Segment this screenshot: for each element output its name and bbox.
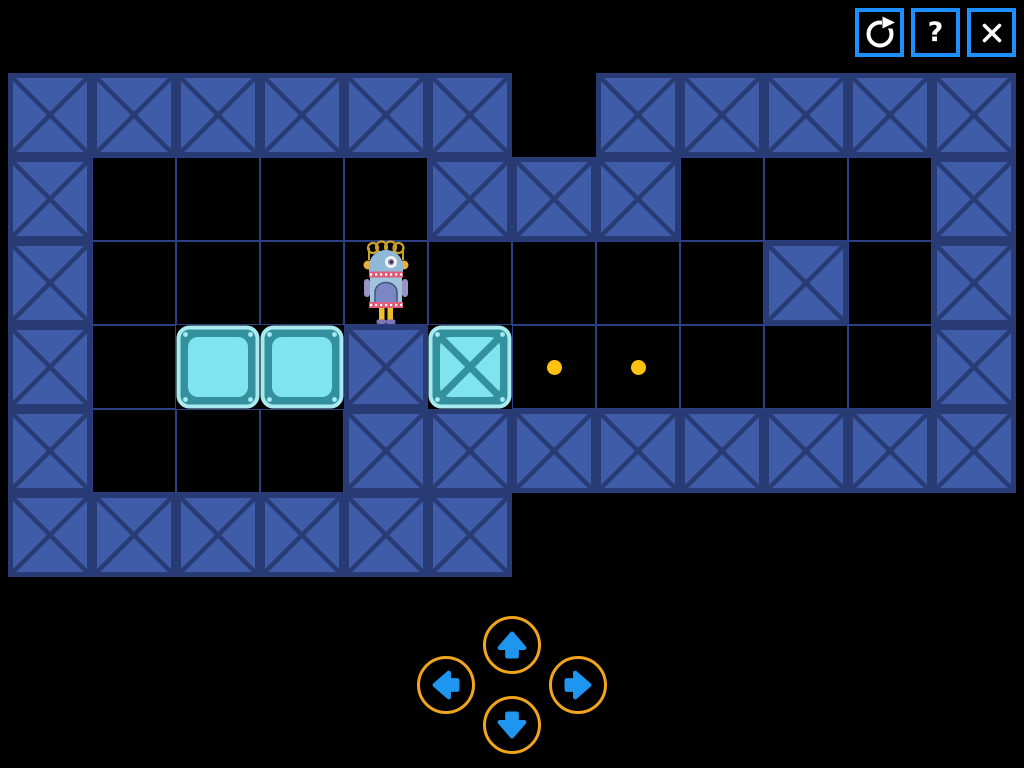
floor-tile — [92, 409, 176, 493]
wall-x-pattern — [176, 493, 260, 577]
floor-tile — [680, 325, 764, 409]
wall-x-pattern — [428, 409, 512, 493]
wall-x-pattern — [176, 73, 260, 157]
floor-tile — [260, 241, 344, 325]
floor-tile — [92, 157, 176, 241]
floor-tile — [176, 409, 260, 493]
wall-x-pattern — [932, 409, 1016, 493]
floor-tile — [512, 241, 596, 325]
wall-tile — [932, 241, 1016, 325]
wall-tile — [92, 73, 176, 157]
floor-tile — [764, 325, 848, 409]
wall-tile — [512, 409, 596, 493]
close-icon — [974, 15, 1010, 51]
wall-x-pattern — [428, 493, 512, 577]
floor-tile — [848, 157, 932, 241]
floor-tile — [596, 241, 680, 325]
wall-tile — [8, 325, 92, 409]
arrow-right-icon — [561, 668, 595, 702]
wall-x-pattern — [848, 409, 932, 493]
floor-tile — [848, 241, 932, 325]
wall-x-pattern — [932, 241, 1016, 325]
wall-x-pattern — [344, 409, 428, 493]
wall-x-pattern — [8, 241, 92, 325]
wall-x-pattern — [764, 409, 848, 493]
wall-tile — [512, 157, 596, 241]
dpad — [417, 616, 607, 754]
wall-x-pattern — [680, 409, 764, 493]
dpad-left-button[interactable] — [417, 656, 475, 714]
wall-tile — [8, 73, 92, 157]
wall-tile — [596, 73, 680, 157]
wall-tile — [260, 493, 344, 577]
wall-x-pattern — [932, 325, 1016, 409]
wall-x-pattern — [8, 409, 92, 493]
wall-x-pattern — [344, 493, 428, 577]
wall-tile — [848, 73, 932, 157]
wall-tile — [932, 157, 1016, 241]
wall-x-pattern — [8, 73, 92, 157]
wall-tile — [344, 325, 428, 409]
floor-tile — [428, 241, 512, 325]
wall-tile — [344, 493, 428, 577]
wall-x-pattern — [92, 493, 176, 577]
wall-x-pattern — [428, 73, 512, 157]
wall-tile — [764, 73, 848, 157]
wall-x-pattern — [512, 409, 596, 493]
wall-tile — [8, 409, 92, 493]
wall-tile — [8, 493, 92, 577]
robot — [360, 240, 412, 324]
help-button[interactable]: ? — [911, 8, 960, 57]
wall-tile — [932, 325, 1016, 409]
wall-x-pattern — [428, 157, 512, 241]
wall-tile — [932, 73, 1016, 157]
wall-tile — [8, 157, 92, 241]
goal-dot — [547, 360, 562, 375]
wall-tile — [176, 73, 260, 157]
wall-x-pattern — [596, 157, 680, 241]
wall-tile — [764, 241, 848, 325]
floor-tile — [260, 157, 344, 241]
floor-tile — [764, 157, 848, 241]
close-button[interactable] — [967, 8, 1016, 57]
wall-x-pattern — [260, 493, 344, 577]
robot-tile — [344, 241, 428, 325]
floor-tile — [92, 325, 176, 409]
floor-tile — [680, 241, 764, 325]
wall-x-pattern — [260, 73, 344, 157]
goal-dot-tile — [512, 325, 596, 409]
toolbar: ? — [855, 8, 1016, 57]
wall-x-pattern — [344, 325, 428, 409]
wall-x-pattern — [512, 157, 596, 241]
wall-tile — [932, 409, 1016, 493]
wall-tile — [428, 157, 512, 241]
wall-x-pattern — [848, 73, 932, 157]
wall-x-pattern — [344, 73, 428, 157]
wall-x-pattern — [764, 241, 848, 325]
dpad-right-button[interactable] — [549, 656, 607, 714]
wall-x-pattern — [92, 73, 176, 157]
floor-tile — [344, 157, 428, 241]
crate — [176, 325, 260, 409]
wall-x-pattern — [8, 157, 92, 241]
wall-x-pattern — [596, 409, 680, 493]
wall-x-pattern — [8, 493, 92, 577]
floor-tile — [176, 157, 260, 241]
wall-x-pattern — [680, 73, 764, 157]
crate-icon — [176, 325, 260, 409]
game-board — [8, 73, 1016, 577]
crate-icon — [260, 325, 344, 409]
crate-with-x — [428, 325, 512, 409]
floor-tile — [848, 325, 932, 409]
wall-tile — [848, 409, 932, 493]
wall-tile — [680, 409, 764, 493]
goal-dot — [631, 360, 646, 375]
wall-tile — [260, 73, 344, 157]
dpad-down-button[interactable] — [483, 696, 541, 754]
crate-x-icon — [428, 325, 512, 409]
arrow-left-icon — [429, 668, 463, 702]
wall-x-pattern — [764, 73, 848, 157]
wall-x-pattern — [932, 157, 1016, 241]
wall-tile — [92, 493, 176, 577]
wall-x-pattern — [596, 73, 680, 157]
restart-icon — [861, 14, 899, 52]
wall-tile — [428, 73, 512, 157]
floor-tile — [260, 409, 344, 493]
dpad-up-button[interactable] — [483, 616, 541, 674]
wall-tile — [344, 409, 428, 493]
wall-tile — [8, 241, 92, 325]
wall-tile — [596, 157, 680, 241]
arrow-down-icon — [495, 708, 529, 742]
wall-x-pattern — [932, 73, 1016, 157]
wall-tile — [176, 493, 260, 577]
wall-tile — [428, 493, 512, 577]
wall-tile — [428, 409, 512, 493]
game-stage: ? — [0, 0, 1024, 768]
wall-x-pattern — [8, 325, 92, 409]
floor-tile — [92, 241, 176, 325]
arrow-up-icon — [495, 628, 529, 662]
goal-dot-tile — [596, 325, 680, 409]
crate — [260, 325, 344, 409]
restart-button[interactable] — [855, 8, 904, 57]
floor-tile — [680, 157, 764, 241]
wall-tile — [344, 73, 428, 157]
wall-tile — [680, 73, 764, 157]
wall-tile — [764, 409, 848, 493]
question-icon: ? — [928, 19, 944, 46]
floor-tile — [176, 241, 260, 325]
wall-tile — [596, 409, 680, 493]
